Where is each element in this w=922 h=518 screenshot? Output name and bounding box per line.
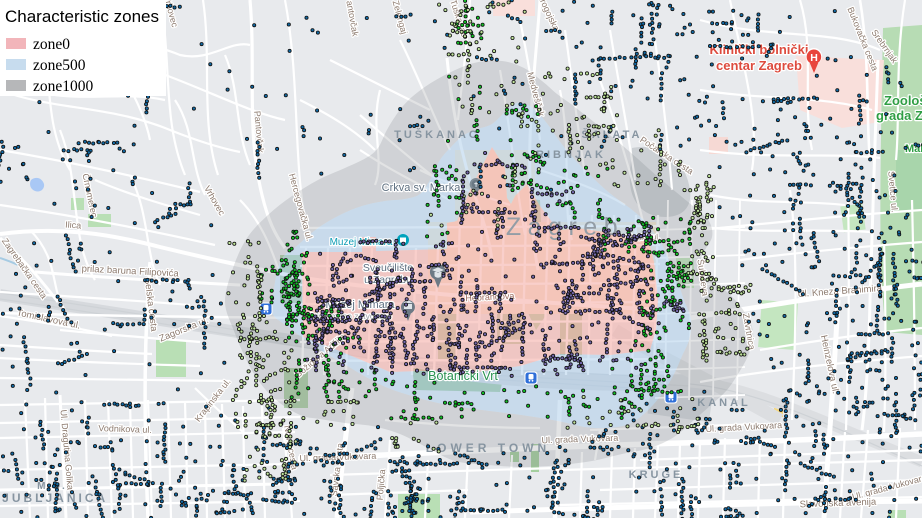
svg-text:Sveučilište: Sveučilište [363, 262, 413, 274]
svg-text:zone1000: zone1000 [33, 78, 94, 95]
svg-text:grada Zagr: grada Zagr [876, 108, 922, 123]
svg-text:Ilica: Ilica [65, 219, 82, 230]
svg-text:Klinički bolnički: Klinički bolnički [710, 42, 809, 57]
svg-text:centar Zagreb: centar Zagreb [716, 58, 802, 73]
svg-text:KRUGE: KRUGE [629, 469, 684, 481]
svg-text:Vodnikova ul.: Vodnikova ul. [98, 423, 152, 435]
svg-text:zone500: zone500 [33, 57, 86, 74]
svg-text:Characteristic zones: Characteristic zones [5, 7, 159, 26]
svg-text:Zoološki: Zoološki [884, 93, 922, 108]
svg-text:TUŠKANAC: TUŠKANAC [394, 128, 480, 141]
svg-text:Crkva sv. Marka: Crkva sv. Marka [382, 182, 462, 194]
svg-text:LOWER TOWN: LOWER TOWN [426, 441, 550, 455]
svg-text:H: H [810, 52, 818, 64]
svg-text:KANAL: KANAL [697, 397, 751, 409]
svg-text:zone0: zone0 [33, 36, 70, 53]
